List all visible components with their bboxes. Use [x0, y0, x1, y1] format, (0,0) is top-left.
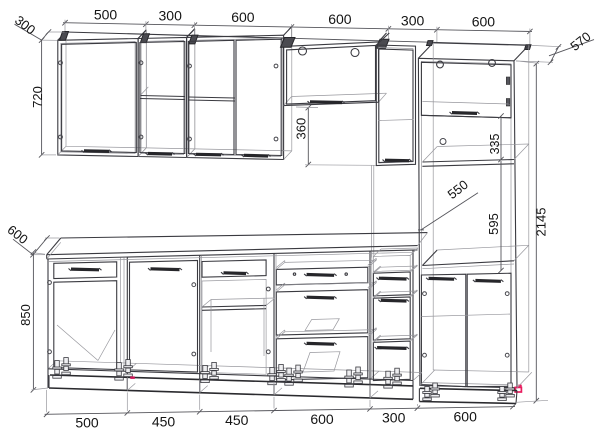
svg-text:850: 850	[18, 304, 33, 326]
svg-text:600: 600	[328, 11, 352, 27]
svg-text:600: 600	[231, 9, 255, 25]
svg-text:2145: 2145	[533, 208, 548, 237]
svg-text:600: 600	[310, 411, 334, 427]
svg-text:500: 500	[94, 7, 118, 23]
svg-text:595: 595	[486, 213, 501, 235]
svg-text:300: 300	[159, 8, 183, 24]
svg-text:500: 500	[75, 415, 99, 431]
svg-text:600: 600	[472, 14, 496, 30]
svg-text:450: 450	[152, 413, 176, 429]
svg-text:300: 300	[382, 410, 406, 426]
svg-text:600: 600	[454, 408, 478, 424]
svg-text:300: 300	[401, 12, 425, 28]
svg-text:720: 720	[30, 86, 45, 108]
svg-text:450: 450	[225, 412, 249, 428]
svg-text:360: 360	[294, 118, 309, 140]
svg-text:335: 335	[488, 134, 502, 155]
